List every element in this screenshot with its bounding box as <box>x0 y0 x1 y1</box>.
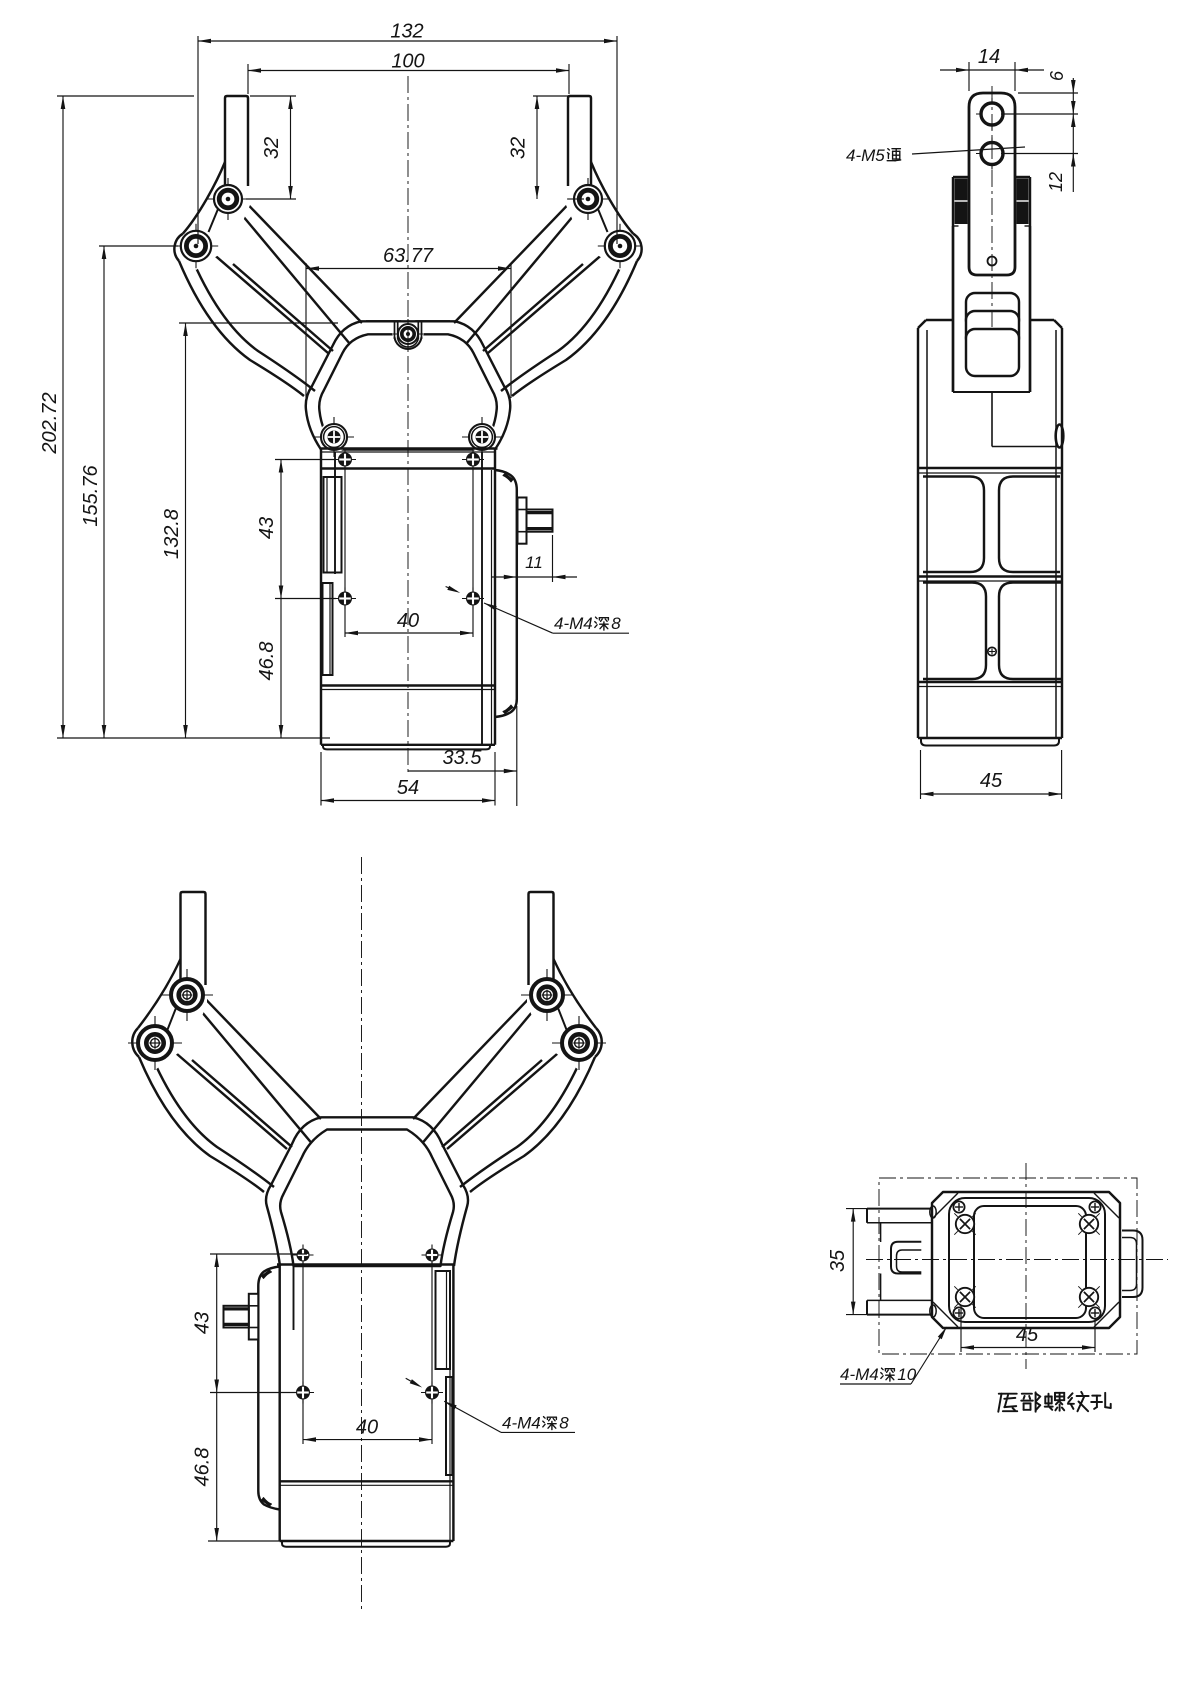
svg-text:6: 6 <box>1047 70 1067 81</box>
svg-text:33.5: 33.5 <box>443 747 483 769</box>
svg-text:202.72: 202.72 <box>39 392 61 454</box>
svg-text:8: 8 <box>559 1414 569 1433</box>
svg-text:54: 54 <box>397 777 419 799</box>
svg-text:35: 35 <box>827 1249 849 1272</box>
svg-text:12: 12 <box>1046 172 1066 192</box>
svg-text:46.8: 46.8 <box>256 642 278 681</box>
svg-text:46.8: 46.8 <box>192 1448 214 1487</box>
svg-text:155.76: 155.76 <box>80 465 102 527</box>
svg-text:8: 8 <box>611 614 621 633</box>
svg-text:43: 43 <box>256 517 278 539</box>
svg-text:11: 11 <box>525 553 543 572</box>
svg-text:32: 32 <box>508 137 530 159</box>
svg-text:45: 45 <box>1016 1324 1039 1346</box>
svg-text:40: 40 <box>356 1417 378 1439</box>
svg-text:32: 32 <box>261 137 283 159</box>
svg-text:132: 132 <box>390 21 423 43</box>
svg-text:132.8: 132.8 <box>161 509 183 559</box>
svg-text:4-M4: 4-M4 <box>840 1365 879 1384</box>
svg-text:43: 43 <box>192 1312 214 1334</box>
svg-text:100: 100 <box>391 51 424 73</box>
svg-text:10: 10 <box>897 1365 916 1384</box>
svg-text:4-M4: 4-M4 <box>554 614 593 633</box>
svg-text:14: 14 <box>978 46 1000 68</box>
svg-text:4-M4: 4-M4 <box>502 1414 541 1433</box>
svg-text:45: 45 <box>980 770 1003 792</box>
svg-text:4-M5: 4-M5 <box>846 146 885 165</box>
